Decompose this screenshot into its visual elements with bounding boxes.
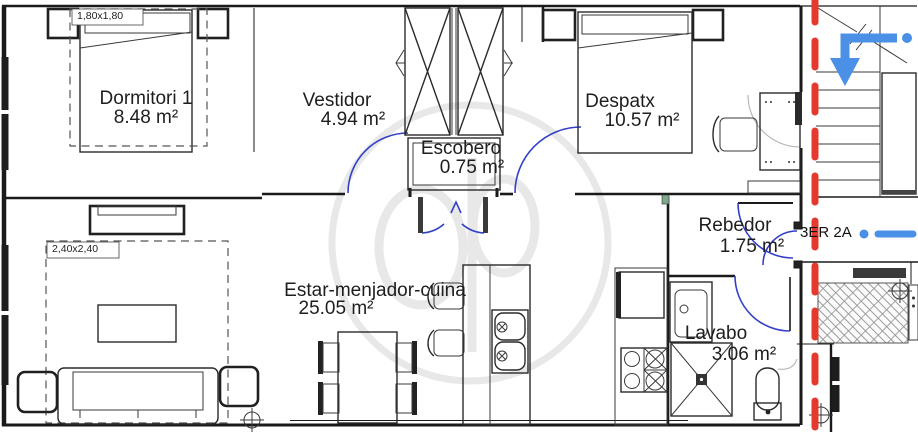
unit-leader-line — [860, 230, 914, 239]
room-label-despatx: Despatx — [585, 92, 655, 112]
neighbour-counter — [818, 268, 918, 343]
entry-arrow-icon — [830, 33, 912, 86]
room-area-estar: 25.05 m² — [299, 299, 374, 319]
desk-and-chair — [713, 93, 800, 193]
room-area-lavabo: 3.06 m² — [712, 345, 776, 365]
room-label-vestidor: Vestidor — [303, 91, 372, 111]
room-area-escobero: 0.75 m² — [440, 158, 504, 178]
room-label-escobero: Escobero — [421, 139, 501, 159]
floorplan-canvas — [0, 0, 918, 432]
bed-dormitori — [48, 9, 228, 152]
room-area-despatx: 10.57 m² — [605, 111, 680, 131]
sideboard — [90, 206, 184, 234]
door-leaf — [795, 92, 802, 125]
kitchen-appliances — [615, 268, 667, 425]
unit-label: 3ER 2A — [800, 225, 852, 241]
dimension-tag-bed: 1,80x1,80 — [77, 11, 123, 22]
room-area-rebedor: 1.75 m² — [720, 237, 784, 257]
floor-plan: Dormitori 1 8.48 m² Vestidor 4.94 m² Esc… — [0, 0, 918, 432]
room-label-dormitori: Dormitori 1 — [100, 89, 193, 109]
room-area-dormitori: 8.48 m² — [114, 108, 178, 128]
dimension-tag-sofa: 2,40x2,40 — [52, 244, 98, 255]
room-label-lavabo: Lavabo — [685, 324, 747, 344]
bed-despatx — [543, 10, 723, 153]
dining-table-set — [318, 332, 417, 423]
sofa-set — [18, 241, 258, 424]
room-label-rebedor: Rebedor — [699, 216, 772, 236]
room-area-vestidor: 4.94 m² — [321, 110, 385, 130]
